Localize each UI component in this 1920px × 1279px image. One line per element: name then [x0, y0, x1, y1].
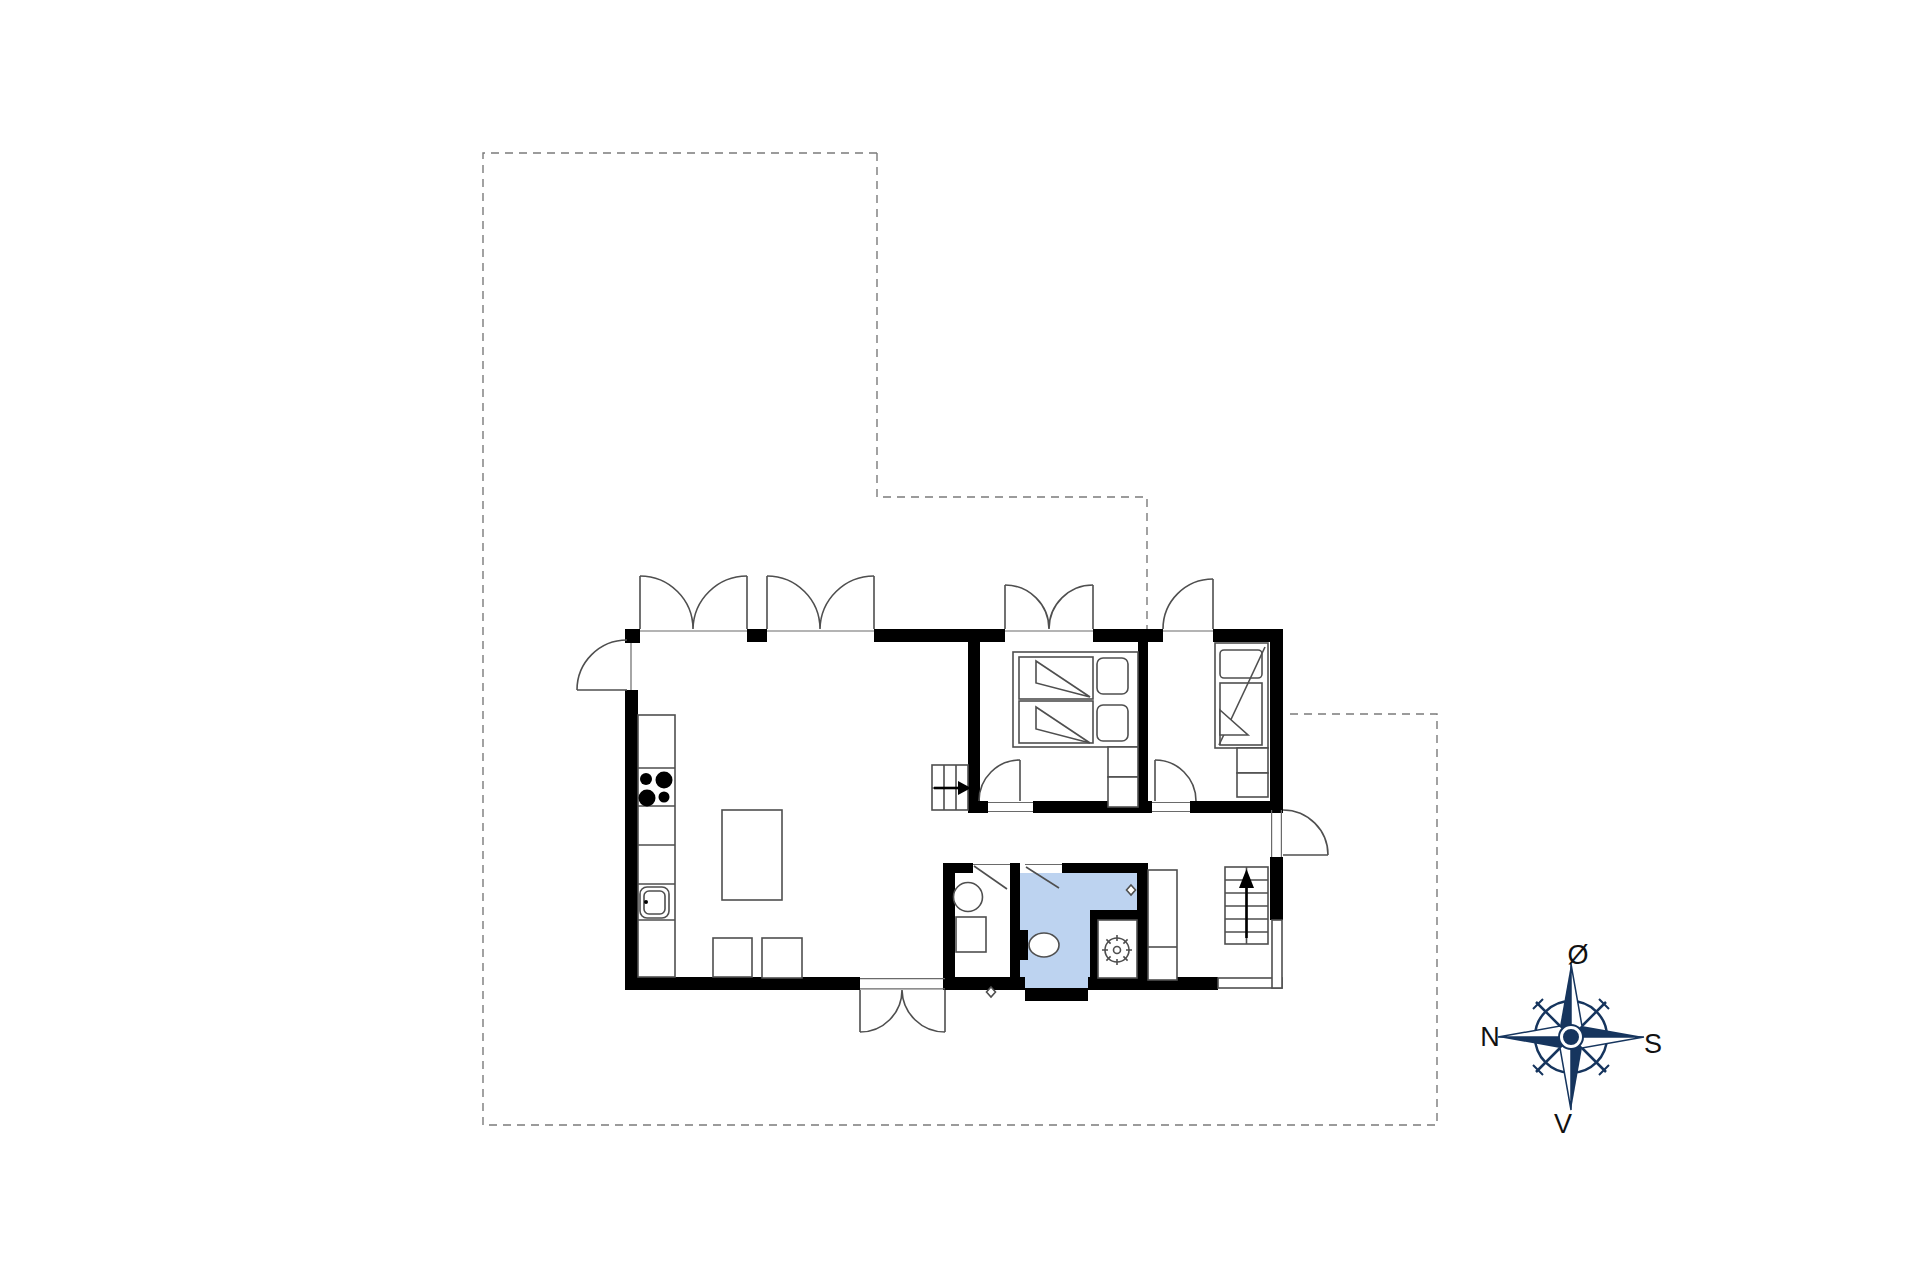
nightstand [1108, 777, 1138, 807]
wall-bedrooms-bottom-2 [1190, 801, 1283, 813]
burner [639, 790, 656, 807]
wall-bedroom1-foot [968, 801, 988, 813]
burner [656, 772, 673, 789]
compass-label-north: N [1480, 1022, 1500, 1052]
compass-label-east: Ø [1567, 940, 1588, 970]
main-stairs [1225, 867, 1268, 944]
compass-label-west: V [1554, 1109, 1572, 1139]
wall-shower-partition-v [1090, 910, 1098, 988]
door-bedroom1-hall [979, 760, 1020, 801]
dining-table [722, 810, 782, 900]
wall-bottom-bump [1025, 988, 1088, 1001]
bedroom1-furniture [1013, 652, 1138, 807]
wc-cabinet [956, 917, 986, 952]
dresser [1237, 773, 1268, 797]
mini-stairs [932, 765, 971, 810]
door-swing-arc [767, 576, 874, 629]
door-leaf-wc [974, 866, 1007, 889]
bedroom2-furniture [1215, 643, 1268, 797]
wall-living-bedroom1 [968, 642, 980, 812]
wall-wc-bath-divider [1010, 863, 1020, 990]
wall-bath-top [1062, 863, 1148, 873]
wall-top-1 [747, 629, 767, 642]
kitchen-sink-icon [640, 887, 669, 918]
wall-right-2 [1270, 857, 1283, 920]
pillow [1097, 658, 1128, 694]
wall-right-1 [1270, 629, 1283, 810]
compass-rose: Ø N S V [1480, 940, 1662, 1139]
wall-top-2 [874, 629, 1005, 642]
pillow [1097, 705, 1128, 741]
wall-bedroom1-bedroom2 [1138, 642, 1148, 813]
burner [659, 792, 670, 803]
door-swing-arc [1283, 810, 1328, 855]
sink-faucet [644, 900, 648, 904]
door-swing-arc [1005, 585, 1093, 629]
french-door-bedroom1 [1005, 585, 1093, 629]
door-bedroom2-hall [1155, 760, 1196, 801]
shower-tray [1098, 920, 1137, 978]
kitchen-counter [638, 715, 675, 977]
door-swing-arc [860, 990, 945, 1032]
sill-east-door [1272, 810, 1282, 857]
door-swing-arc [640, 576, 747, 629]
living-room-furniture [713, 810, 802, 978]
french-door-living-1 [640, 576, 747, 629]
door-swing-arc [577, 640, 627, 690]
wall-wc-left [943, 863, 955, 990]
door-hall-east [1283, 810, 1328, 855]
wc-room [954, 883, 987, 953]
door-left-exterior [577, 640, 627, 690]
chair [713, 938, 752, 977]
washbasin-icon [954, 883, 983, 912]
bunk-pillow [1220, 650, 1262, 678]
wall-top-3 [1093, 629, 1163, 642]
toilet-cistern [1020, 930, 1028, 960]
floor-plan-page: Ø N S V [0, 0, 1920, 1279]
wall-bath-right [1137, 863, 1148, 990]
wardrobe [1148, 870, 1177, 980]
door-swing-arc [1155, 760, 1196, 801]
compass-label-south: S [1644, 1029, 1662, 1059]
dresser [1237, 748, 1268, 773]
sill-bottom-doors [860, 979, 945, 989]
door-swing-arc [979, 760, 1020, 801]
wall-left [625, 690, 638, 990]
door-bedroom2-exterior [1163, 579, 1213, 629]
kitchen [638, 715, 675, 977]
chair [762, 938, 802, 978]
nightstand [1108, 747, 1138, 777]
window-right [1272, 920, 1282, 988]
french-door-living-2 [767, 576, 874, 629]
wall-wc-top [943, 863, 973, 873]
hall-wardrobe [1148, 870, 1177, 980]
wall-top-corner [625, 629, 640, 643]
toilet-icon [1029, 933, 1059, 957]
wall-bottom-1 [625, 977, 860, 990]
floor-plan-drawing: Ø N S V [0, 0, 1920, 1279]
burner [640, 773, 652, 785]
french-door-entrance-south [860, 990, 945, 1032]
door-swing-arc [1163, 579, 1213, 629]
